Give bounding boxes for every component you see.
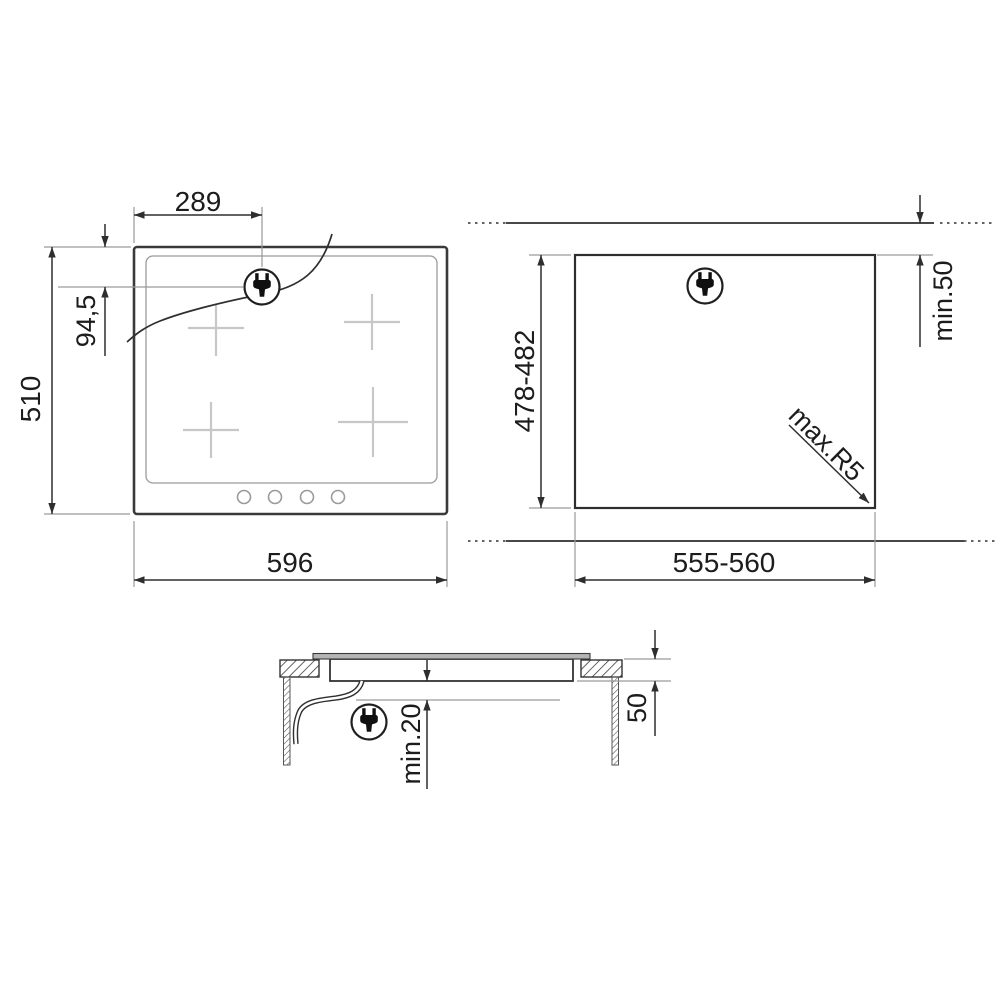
worktop-section-right (581, 660, 622, 677)
dim-label-596: 596 (267, 547, 314, 578)
control-button (301, 491, 314, 504)
dim-label-555-560: 555-560 (673, 547, 776, 578)
control-buttons (238, 491, 345, 504)
cooking-zone-mark-bottom-right (338, 387, 408, 457)
power-plug-icon (352, 705, 387, 740)
dimension-recess-depth: 50 (577, 630, 671, 736)
cooking-zone-mark-bottom-left (183, 402, 239, 458)
dim-label-min-50: min.50 (928, 260, 958, 341)
cabinet-panel-left (284, 677, 291, 765)
cutout-outline (575, 255, 875, 508)
installation-drawing: 289 94,5 510 596 (0, 0, 1000, 1000)
dim-label-94-5: 94,5 (71, 295, 101, 348)
control-button (238, 491, 251, 504)
dimension-rear-clearance: min.50 (877, 195, 958, 347)
hob-body-section (330, 659, 573, 681)
dim-label-50: 50 (622, 693, 652, 723)
dim-label-min-20: min.20 (396, 703, 426, 784)
control-button (269, 491, 282, 504)
worktop-section-left (280, 660, 319, 677)
power-cable (295, 681, 362, 744)
power-plug-icon (245, 270, 280, 305)
dim-label-510: 510 (15, 376, 46, 423)
section-view: min.20 50 (280, 630, 671, 789)
cutout-view: 478-482 min.50 max.R5 555-560 (468, 195, 996, 587)
installation-drawing-page: 289 94,5 510 596 (0, 0, 1000, 1000)
plan-view: 289 94,5 510 596 (15, 186, 447, 587)
cabinet-panel-right (612, 677, 619, 765)
dim-label-478-482: 478-482 (509, 330, 540, 433)
dimension-overall-width: 596 (134, 521, 447, 587)
control-button (332, 491, 345, 504)
dimension-cutout-width: 555-560 (575, 512, 875, 587)
power-plug-icon (688, 269, 723, 304)
cooking-zone-mark-top-right (344, 294, 400, 350)
hob-glass-section (313, 654, 590, 660)
dim-label-289: 289 (175, 186, 222, 217)
dimension-cutout-depth: 478-482 (509, 255, 571, 508)
